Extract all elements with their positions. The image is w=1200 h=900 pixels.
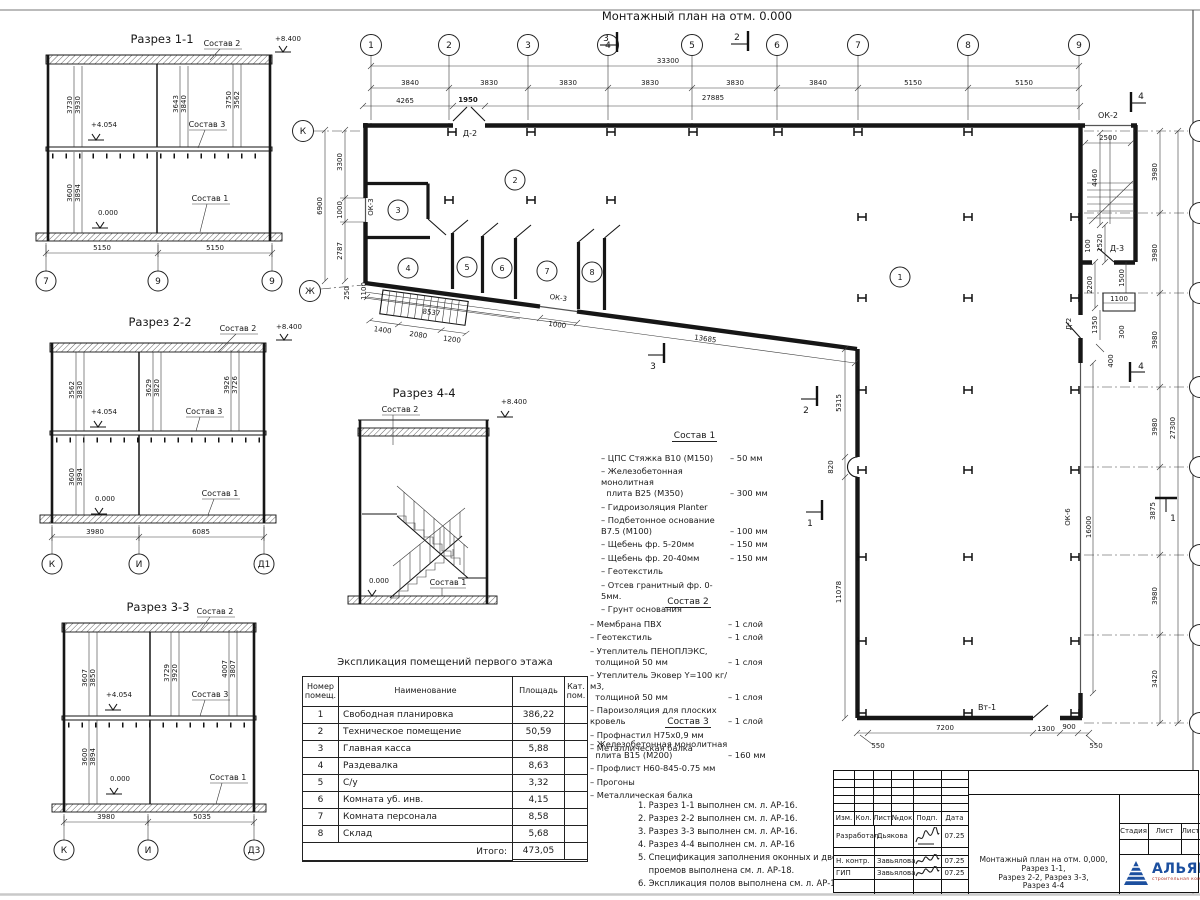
door-label: Д-2 — [463, 129, 477, 138]
cut-mark: 3 — [603, 34, 609, 44]
section-title: Разрез 1-1 — [130, 32, 193, 46]
cell: Комната персонала — [339, 809, 513, 826]
col-header: Площадь — [513, 677, 565, 707]
dim-label: 3980 — [1151, 244, 1159, 262]
level-mark: 0.000 — [98, 209, 118, 217]
room-number: 2 — [512, 176, 517, 185]
room-number: 5 — [464, 263, 469, 272]
thickness: – 1 слоя — [728, 692, 786, 703]
dim-label: 3840 — [809, 79, 827, 87]
dim-label: 3600 — [81, 748, 89, 766]
dim-label: 5150 — [206, 244, 224, 252]
dim-label: 3729 — [163, 664, 171, 682]
cell: Склад — [339, 826, 513, 843]
axis-label: К — [300, 127, 307, 137]
col-header: Наименование — [339, 677, 513, 707]
table-row: 7Комната персонала8,58 — [303, 809, 587, 826]
dim-label: 8537 — [422, 308, 441, 318]
sostav1-ref: Состав 1 — [202, 489, 239, 498]
cell — [565, 843, 587, 860]
dim-label: 3562 — [233, 91, 241, 109]
tb-col-header: Изм. — [834, 811, 854, 825]
tb-role: Разработал — [834, 829, 874, 843]
material: – Прогоны — [590, 777, 728, 788]
level-mark: +4.054 — [91, 408, 117, 416]
dim-label: 1520 — [1096, 234, 1104, 252]
dim-label: 3629 — [145, 379, 153, 397]
sostav3-ref: Состав 3 — [186, 407, 223, 416]
cell: 8,58 — [513, 809, 565, 826]
dim-label: 3926 — [223, 376, 231, 394]
dim-label: 4460 — [1091, 169, 1099, 187]
cell — [565, 775, 587, 792]
tb-col-header: №док — [891, 811, 913, 825]
stage-header: Стадия — [1119, 823, 1148, 839]
material: – Геотекстиль — [601, 566, 730, 577]
dim-label: 3840 — [180, 95, 188, 113]
dim-label: 27300 — [1169, 417, 1177, 439]
material: – Подбетонное основание В7.5 (М100) — [601, 515, 730, 537]
cell: Свободная планировка — [339, 707, 513, 724]
axis-label: 7 — [43, 277, 49, 287]
material: – Утеплитель Эковер Y=100 кг/м3, толщино… — [590, 670, 728, 703]
cell: 5,68 — [513, 826, 565, 843]
dim-label: 6085 — [192, 528, 210, 536]
axis-label: Д3 — [248, 846, 261, 856]
list-title: Состав 2 — [590, 597, 786, 609]
dim-label: 33300 — [657, 57, 679, 65]
sostav2-ref: Состав 2 — [382, 405, 419, 414]
thickness: – 150 мм — [730, 539, 788, 550]
thickness: – 1 слоя — [728, 657, 786, 668]
dim-label: 1400 — [373, 325, 392, 335]
tb-col-header: Дата — [941, 811, 968, 825]
cut-mark: 3 — [650, 362, 656, 372]
cut-mark: 4 — [1138, 92, 1144, 102]
dim-label: 5150 — [904, 79, 922, 87]
thickness: – 300 мм — [730, 488, 788, 499]
list-title: Состав 1 — [601, 431, 788, 443]
tb-name: Завьялова — [875, 867, 913, 879]
cell: 4 — [303, 758, 339, 775]
axis-label: 6 — [774, 41, 780, 51]
sostav3-ref: Состав 3 — [192, 690, 229, 699]
dim-label: 3894 — [76, 468, 84, 486]
cut-mark: 2 — [803, 406, 809, 416]
cell — [565, 707, 587, 724]
tb-col-header: Кол. — [854, 811, 873, 825]
cut-mark: 4 — [1138, 362, 1144, 372]
dim-label: 5150 — [93, 244, 111, 252]
material: – Щебень фр. 5-20мм — [601, 539, 730, 550]
logo-triangle-icon — [1124, 859, 1148, 885]
dim-label: 3840 — [401, 79, 419, 87]
dim-label: 1200 — [443, 335, 462, 345]
logo-subtext: строительная компания — [1152, 877, 1200, 882]
axis-label: Ж — [305, 287, 315, 297]
dim-label: 1000 — [548, 320, 567, 330]
sostav3-list: Состав 3 – Железобетонная монолитная пли… — [590, 717, 786, 804]
dim-label: 1350 — [1091, 316, 1099, 334]
room-number: 8 — [589, 268, 594, 277]
dim-label: 1000 — [336, 201, 344, 219]
section-3-3: Разрез 3-3 3607 3850 3729 3920 4007 3807… — [52, 600, 266, 860]
section-2-2: Разрез 2-2 3562 3830 3629 3820 3926 3726… — [40, 315, 302, 574]
cell: 3 — [303, 741, 339, 758]
table-row: 8Склад5,68 — [303, 826, 587, 843]
dim-label: 2500 — [1099, 134, 1117, 142]
material: – Железобетонная монолитная плита В25 (М… — [601, 466, 730, 499]
document-title: Монтажный план на отм. 0,000, Разрез 1-1… — [970, 855, 1117, 892]
logo-text: АЛЬЯНС — [1152, 862, 1200, 876]
dim-label: 3980 — [1151, 331, 1159, 349]
axis-label: Д1 — [258, 560, 271, 570]
right-edge-axis-circles — [1190, 121, 1200, 734]
door-label: Д-2 — [1065, 318, 1073, 330]
plan-axis-circles: 1 2 3 4 5 6 7 8 9 — [361, 35, 1090, 56]
dim-label: 3930 — [74, 96, 82, 114]
thickness: – 100 мм — [730, 526, 788, 537]
cell — [565, 792, 587, 809]
tb-name: Завьялова — [875, 855, 913, 867]
dim-label: 1300 — [1037, 725, 1055, 733]
sostav2-ref: Состав 2 — [197, 607, 234, 616]
thickness: – 160 мм — [728, 750, 786, 761]
dim-label: 3600 — [68, 468, 76, 486]
window-label: ОК-2 — [1098, 111, 1118, 120]
thickness: – 50 мм — [730, 453, 788, 464]
dim-label: 2080 — [409, 330, 428, 340]
cell: 5 — [303, 775, 339, 792]
axis-label: 7 — [855, 41, 861, 51]
tb-role: Н. контр. — [834, 855, 874, 867]
axis-label: И — [136, 560, 143, 570]
thickness: – 1 слой — [728, 619, 786, 630]
drawing-sheet: { "sheet":{"plan_title":"Монтажный план … — [0, 0, 1200, 900]
dim-label: 16000 — [1085, 516, 1093, 538]
cell — [565, 758, 587, 775]
tb-col-header: Подп. — [913, 811, 941, 825]
level-mark: +4.054 — [106, 691, 132, 699]
room-number: 7 — [544, 267, 549, 276]
table-header: Номер помещ. Наименование Площадь Кат. п… — [303, 677, 587, 707]
cell: 4,15 — [513, 792, 565, 809]
cell — [565, 724, 587, 741]
dim-label: 2200 — [1086, 276, 1094, 294]
axis-label: 9 — [1076, 41, 1082, 51]
level-mark: +8.400 — [501, 398, 527, 406]
plan-title: Монтажный план на отм. 0.000 — [602, 9, 792, 23]
table-row: 4Раздевалка8,63 — [303, 758, 587, 775]
dim-label: 3807 — [229, 660, 237, 678]
thickness: – 150 мм — [730, 553, 788, 564]
door-label: Д-3 — [1110, 244, 1124, 253]
room-number: 3 — [395, 206, 400, 215]
cell: Главная касса — [339, 741, 513, 758]
section-1-1: Разрез 1-1 3730 3930 3643 3840 3750 3562… — [36, 32, 301, 291]
cell: 5,88 — [513, 741, 565, 758]
window-label: ОК-3 — [549, 293, 567, 303]
room-number: 4 — [405, 264, 410, 273]
dim-label: 5150 — [1015, 79, 1033, 87]
cut-mark: 1 — [1170, 514, 1176, 524]
axis-label: К — [49, 560, 56, 570]
dim-label: 4007 — [221, 660, 229, 678]
dim-label: 100 — [1084, 239, 1092, 252]
dim-label: 550 — [871, 742, 884, 750]
dim-label: 3980 — [1151, 587, 1159, 605]
room-number: 6 — [499, 264, 504, 273]
dim-label: 2787 — [336, 242, 344, 260]
dim-label: 27885 — [702, 94, 724, 102]
dim-label: 3820 — [153, 379, 161, 397]
dim-label: 3980 — [1151, 163, 1159, 181]
cell: Раздевалка — [339, 758, 513, 775]
dim-label: 6900 — [316, 197, 324, 215]
material: – Гидроизоляция Planter — [601, 502, 730, 513]
table-total-row: Итого:473,05 — [303, 843, 587, 861]
signature — [914, 866, 940, 879]
dim-label: 5035 — [193, 813, 211, 821]
dim-label: 1100 — [1110, 295, 1128, 303]
tb-col-header: Лист — [873, 811, 891, 825]
dim-label: 1950 — [458, 96, 478, 104]
dim-label: 3894 — [89, 748, 97, 766]
dim-label: 3750 — [225, 91, 233, 109]
col-header: Кат. пом. — [565, 677, 587, 707]
col-header: Номер помещ. — [303, 677, 339, 707]
section-title: Разрез 2-2 — [128, 315, 191, 329]
level-mark: 0.000 — [110, 775, 130, 783]
sostav2-ref: Состав 2 — [220, 324, 257, 333]
axis-label: 2 — [446, 41, 452, 51]
thickness: – 1 слой — [728, 632, 786, 643]
dim-label: 4265 — [396, 97, 414, 105]
cell — [565, 826, 587, 843]
dim-label: 3726 — [231, 376, 239, 394]
material: – Щебень фр. 20-40мм — [601, 553, 730, 564]
axis-label: К — [61, 846, 68, 856]
table-row: 3Главная касса5,88 — [303, 741, 587, 758]
dim-label: 3980 — [86, 528, 104, 536]
cell: 3,32 — [513, 775, 565, 792]
material: – ЦПС Стяжка В10 (М150) — [601, 453, 730, 464]
level-mark: +8.400 — [276, 323, 302, 331]
dim-label: 300 — [1118, 325, 1126, 338]
section-title: Разрез 3-3 — [126, 600, 189, 614]
dim-label: 3643 — [172, 95, 180, 113]
cell: 8 — [303, 826, 339, 843]
dim-label: 3730 — [66, 96, 74, 114]
dim-label: 3830 — [76, 381, 84, 399]
sostav1-ref: Состав 1 — [210, 773, 247, 782]
table-row: 5С/у3,32 — [303, 775, 587, 792]
material: – Геотекстиль — [590, 632, 728, 643]
table-row: 6Комната уб. инв.4,15 — [303, 792, 587, 809]
cell: 386,22 — [513, 707, 565, 724]
list-title: Состав 3 — [590, 717, 786, 729]
dim-label: 900 — [1062, 723, 1075, 731]
total-value: 473,05 — [513, 843, 565, 860]
window-label: ОК-6 — [1064, 508, 1072, 526]
cell: 8,63 — [513, 758, 565, 775]
axis-label: 5 — [689, 41, 695, 51]
sostav1-ref: Состав 1 — [192, 194, 229, 203]
cut-mark: 1 — [807, 519, 813, 529]
tb-role: ГИП — [834, 867, 874, 879]
cell: 7 — [303, 809, 339, 826]
cell: С/у — [339, 775, 513, 792]
dim-label: 3980 — [97, 813, 115, 821]
cell — [565, 809, 587, 826]
dim-label: 3875 — [1149, 502, 1157, 520]
dim-label: 1500 — [1118, 269, 1126, 287]
material: – Мембрана ПВХ — [590, 619, 728, 630]
explication-table: Номер помещ. Наименование Площадь Кат. п… — [302, 676, 588, 862]
gate-label: Вт-1 — [978, 703, 996, 712]
company-logo: АЛЬЯНС строительная компания — [1124, 859, 1200, 885]
dim-label: 3562 — [68, 381, 76, 399]
table-row: 2Техническое помещение50,59 — [303, 724, 587, 741]
explication-title: Экспликация помещений первого этажа — [302, 657, 588, 668]
tb-date: 07.25 — [941, 829, 968, 843]
dim-label: 7200 — [936, 724, 954, 732]
dim-label: 3600 — [66, 184, 74, 202]
section-4-4: Разрез 4-4 Состав 2 +8.400 0.000 Состав … — [348, 386, 527, 604]
material: – Профлист Н60-845-0.75 мм — [590, 763, 728, 774]
cell: 50,59 — [513, 724, 565, 741]
room-numbers: 1 2 3 4 5 6 7 8 — [388, 170, 910, 287]
level-mark: 0.000 — [95, 495, 115, 503]
cell: Техническое помещение — [339, 724, 513, 741]
dim-label: 400 — [1107, 354, 1115, 367]
dim-label: 3830 — [726, 79, 744, 87]
window-label: ОК-3 — [367, 198, 375, 215]
cell — [565, 741, 587, 758]
dim-label: 3830 — [641, 79, 659, 87]
dim-label: 3920 — [171, 664, 179, 682]
room-number: 1 — [897, 273, 902, 282]
cell: Комната уб. инв. — [339, 792, 513, 809]
dim-label: 250 — [343, 286, 351, 299]
sostav1-list: Состав 1 – ЦПС Стяжка В10 (М150)– 50 мм … — [601, 431, 788, 618]
dim-label: 3607 — [81, 669, 89, 687]
level-mark: +4.054 — [91, 121, 117, 129]
cell: 2 — [303, 724, 339, 741]
tb-name: Дьякова — [875, 829, 913, 843]
axis-label: 9 — [269, 277, 275, 287]
cell: 6 — [303, 792, 339, 809]
dim-label: 3300 — [336, 153, 344, 171]
axis-label: 9 — [155, 277, 161, 287]
tb-date: 07.25 — [941, 855, 968, 867]
dim-label: 820 — [827, 460, 835, 473]
axis-label: 3 — [525, 41, 531, 51]
dim-label: 550 — [1089, 742, 1102, 750]
signature — [914, 827, 940, 847]
dim-label: 13685 — [694, 334, 717, 345]
table-row: 1Свободная планировка386,22 — [303, 707, 587, 724]
sostav3-ref: Состав 3 — [189, 120, 226, 129]
material: – Утеплитель ПЕНОПЛЭКС, толщиной 50 мм — [590, 646, 728, 668]
dim-label: 5315 — [835, 394, 843, 412]
stage-header: Лист — [1148, 823, 1181, 839]
title-block: Изм. Кол. Лист №док Подп. Дата Разработа… — [833, 770, 1199, 893]
cut-mark: 2 — [734, 33, 740, 43]
level-mark: +8.400 — [275, 35, 301, 43]
section-title: Разрез 4-4 — [392, 386, 455, 400]
material: – Железобетонная монолитная плита В15 (М… — [590, 739, 728, 761]
dim-label: 3830 — [480, 79, 498, 87]
dim-label: 3980 — [1151, 418, 1159, 436]
dim-label: 3830 — [559, 79, 577, 87]
dim-label: 11078 — [835, 581, 843, 603]
sostav2-ref: Состав 2 — [204, 39, 241, 48]
dim-label: 3850 — [89, 669, 97, 687]
total-label: Итого: — [303, 843, 513, 861]
level-mark: 0.000 — [369, 577, 389, 585]
stage-header: Лист — [1181, 823, 1200, 839]
dim-label: 3420 — [1151, 670, 1159, 688]
sostav1-ref: Состав 1 — [430, 578, 467, 587]
cell: 1 — [303, 707, 339, 724]
axis-label: И — [145, 846, 152, 856]
tb-date: 07.25 — [941, 867, 968, 879]
dim-label: 3894 — [74, 184, 82, 202]
axis-label: 1 — [368, 41, 374, 51]
axis-label: 8 — [965, 41, 971, 51]
